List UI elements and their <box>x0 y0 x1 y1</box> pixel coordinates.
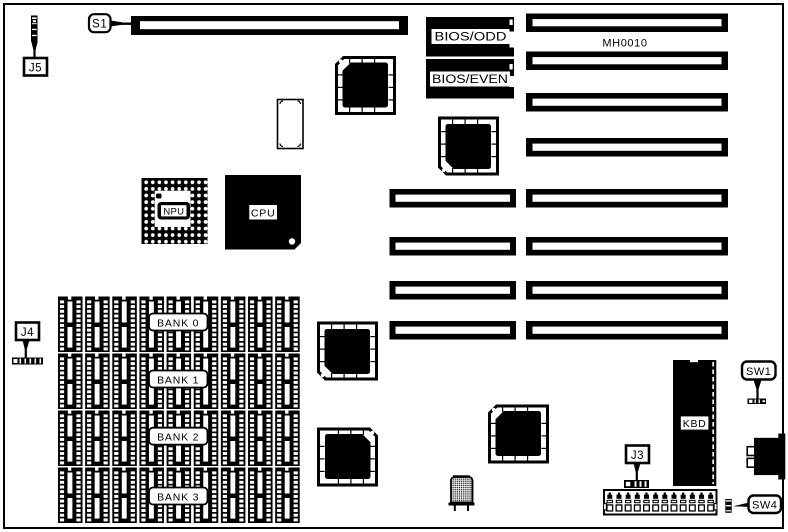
svg-text:S1: S1 <box>92 19 107 31</box>
svg-text:BANK 3: BANK 3 <box>157 492 199 504</box>
svg-text:J5: J5 <box>29 63 42 75</box>
svg-text:SW1: SW1 <box>746 366 771 378</box>
svg-text:J4: J4 <box>21 327 34 339</box>
svg-text:J3: J3 <box>631 450 644 462</box>
svg-text:BANK 0: BANK 0 <box>157 318 199 330</box>
svg-text:NPU: NPU <box>163 207 184 218</box>
svg-text:MH0010: MH0010 <box>602 38 647 50</box>
svg-text:BANK 2: BANK 2 <box>157 432 199 444</box>
svg-text:BIOS/EVEN: BIOS/EVEN <box>432 74 508 86</box>
svg-text:SW4: SW4 <box>752 500 777 512</box>
svg-text:BIOS/ODD: BIOS/ODD <box>435 32 507 44</box>
svg-text:CPU: CPU <box>251 208 276 220</box>
svg-text:BANK 1: BANK 1 <box>157 375 199 387</box>
svg-text:KBD: KBD <box>683 418 707 430</box>
